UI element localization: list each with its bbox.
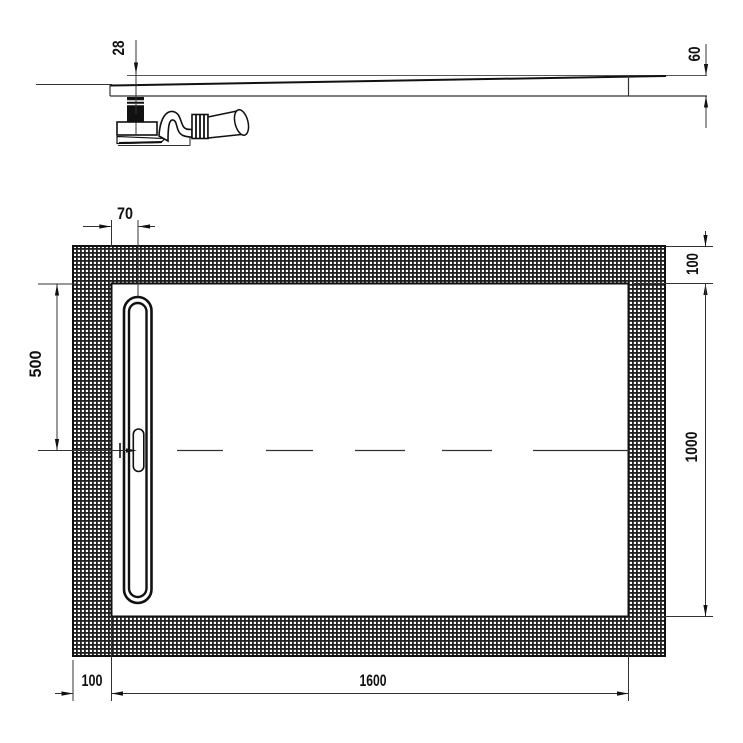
dim-arrow-down — [703, 235, 707, 247]
dim-arrow-down — [703, 605, 707, 617]
dim-label-70: 70 — [117, 205, 133, 223]
trap-under-plate-edge — [119, 142, 162, 143]
dim-label-100-bottom: 100 — [82, 672, 103, 690]
dim-label-500: 500 — [27, 351, 45, 378]
trap-s-pipe — [159, 111, 192, 141]
shower-tray-drawing: 28 60 — [0, 0, 743, 743]
dim-arrow-left — [139, 224, 151, 228]
dim-arrow-down — [704, 64, 708, 76]
plan-view: 70 500 100 1000 — [27, 205, 713, 701]
dimension-500: 500 — [27, 284, 76, 451]
dimension-60: 60 — [686, 44, 708, 128]
dim-label-28: 28 — [110, 41, 128, 56]
technical-drawing-canvas: 28 60 — [0, 0, 743, 743]
dim-arrow-right — [99, 224, 111, 228]
dim-arrow-left — [112, 691, 124, 695]
dim-arrow-right — [617, 691, 629, 695]
dim-arrow-down — [55, 439, 59, 451]
dim-label-1600: 1600 — [360, 672, 387, 690]
dim-label-1000: 1000 — [683, 432, 701, 463]
dim-arrow-right — [62, 691, 74, 695]
side-view: 28 60 — [36, 40, 708, 146]
dimension-70: 70 — [83, 205, 155, 247]
drain-trap — [117, 97, 251, 146]
dim-label-60: 60 — [686, 47, 704, 62]
dim-arrow-up — [704, 96, 708, 108]
dim-arrow-down — [134, 63, 138, 75]
dim-arrow-up — [55, 284, 59, 296]
tray-slope-line — [110, 76, 666, 86]
trap-flange — [117, 122, 157, 135]
dim-label-100-right: 100 — [684, 253, 702, 275]
